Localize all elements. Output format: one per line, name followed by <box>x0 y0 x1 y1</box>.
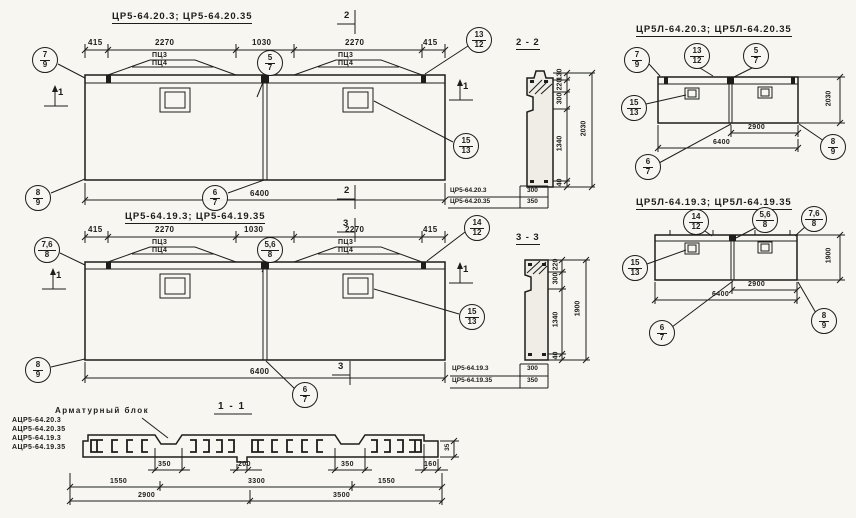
dim-label-vertical: 40 <box>553 339 560 373</box>
detail-callout: 7,68 <box>801 206 827 232</box>
callout-sheet: 12 <box>473 229 482 238</box>
table-value: 300 <box>527 188 538 195</box>
detail-callout: 1513 <box>453 133 479 159</box>
dim-label: 415 <box>423 39 438 47</box>
mount-loop-label: ПЦ3 <box>152 52 167 59</box>
callout-sheet: 12 <box>692 223 701 232</box>
callout-sheet: 7 <box>660 334 664 343</box>
dim-label: 6400 <box>250 190 269 198</box>
mount-loop-label: ПЦ3 <box>338 239 353 246</box>
table-value: 350 <box>527 378 538 385</box>
table-mark: ЦР5-64.19.35 <box>452 378 492 385</box>
dim-label: 350 <box>158 461 171 468</box>
panel-mark-title-row1: ЦР5-64.20.3; ЦР5-64.20.35 <box>112 11 252 24</box>
callout-sheet: 9 <box>36 199 40 208</box>
detail-callout: 79 <box>624 47 650 73</box>
dim-label-vertical: 40 <box>557 166 564 200</box>
dim-label: 2270 <box>155 226 174 234</box>
callout-sheet: 7 <box>646 168 650 177</box>
dim-label: 2900 <box>138 492 155 499</box>
dim-label: 1550 <box>378 478 395 485</box>
section-marker-3-bottom: 3 <box>338 362 343 372</box>
table-mark: ЦР5-64.19.3 <box>452 366 489 373</box>
dim-label: 350 <box>341 461 354 468</box>
detail-callout: 67 <box>202 185 228 211</box>
drawing-sheet: ЦР5-64.20.3; ЦР5-64.20.35 2 2 1 1 415 22… <box>0 0 856 518</box>
mount-loop-label: ПЦ4 <box>152 247 167 254</box>
detail-callout: 1513 <box>622 255 648 281</box>
callout-sheet: 9 <box>36 371 40 380</box>
section-marker-1-left: 1 <box>58 88 63 98</box>
dim-label-vertical: 1900 <box>575 292 582 326</box>
dim-label: 6400 <box>712 291 729 298</box>
dim-label: 2900 <box>748 124 765 131</box>
dim-label: 1550 <box>110 478 127 485</box>
dim-label: 6400 <box>713 139 730 146</box>
dim-label: 200 <box>238 461 251 468</box>
callout-sheet: 7 <box>754 57 758 66</box>
detail-callout: 89 <box>25 185 51 211</box>
dim-label-vertical: 2030 <box>826 82 833 116</box>
section-marker-1-right: 1 <box>463 265 468 275</box>
callout-sheet: 13 <box>468 318 477 327</box>
section-3-3-title: 3 - 3 <box>516 232 540 245</box>
detail-callout: 89 <box>820 134 846 160</box>
dim-label: 1030 <box>244 226 263 234</box>
mount-loop-label: ПЦ4 <box>338 247 353 254</box>
section-marker-2-top: 2 <box>344 11 349 21</box>
section-1-1-linework <box>67 414 459 505</box>
dim-label-vertical: 1340 <box>557 127 564 161</box>
section-marker-1-right: 1 <box>463 82 468 92</box>
panel-mark-title-row2: ЦР5-64.19.3; ЦР5-64.19.35 <box>125 211 265 224</box>
dim-label-vertical: 300 <box>557 82 564 116</box>
mount-loop-label: ПЦ3 <box>152 239 167 246</box>
table-value: 300 <box>527 366 538 373</box>
section-marker-1-left: 1 <box>56 271 61 281</box>
right1-elevation-linework <box>646 64 845 163</box>
dim-label: 415 <box>423 226 438 234</box>
callout-sheet: 12 <box>475 41 484 50</box>
table-mark: ЦР5-64.20.35 <box>450 199 490 206</box>
section-1-1-title: 1 - 1 <box>218 402 246 412</box>
detail-callout: 7,68 <box>34 237 60 263</box>
dim-label: 2270 <box>345 226 364 234</box>
rebar-block-label: Арматурный блок <box>55 407 149 415</box>
table-mark: ЦР5-64.20.3 <box>450 188 487 195</box>
detail-callout: 57 <box>257 50 283 76</box>
drawing-linework <box>0 0 856 518</box>
rebar-block-item: АЦР5-64.20.35 <box>12 426 66 433</box>
dim-label-vertical: 2030 <box>581 112 588 146</box>
detail-callout: 1412 <box>464 215 490 241</box>
dim-label: 2270 <box>155 39 174 47</box>
dim-label: 2900 <box>748 281 765 288</box>
callout-sheet: 9 <box>822 322 826 331</box>
detail-callout: 89 <box>811 308 837 334</box>
callout-sheet: 7 <box>213 199 217 208</box>
dim-label: 3300 <box>248 478 265 485</box>
callout-sheet: 9 <box>635 61 639 70</box>
detail-callout: 67 <box>649 320 675 346</box>
panel-mark-title-right1: ЦР5Л-64.20.3; ЦР5Л-64.20.35 <box>636 24 792 37</box>
callout-sheet: 8 <box>45 251 49 260</box>
callout-sheet: 8 <box>268 251 272 260</box>
detail-callout: 89 <box>25 357 51 383</box>
detail-callout: 67 <box>292 382 318 408</box>
table-value: 350 <box>527 199 538 206</box>
callout-sheet: 13 <box>630 109 639 118</box>
callout-sheet: 13 <box>631 269 640 278</box>
dim-label: 3500 <box>333 492 350 499</box>
dim-label: 160 <box>424 461 437 468</box>
callout-sheet: 12 <box>693 57 702 66</box>
callout-sheet: 9 <box>43 61 47 70</box>
detail-callout: 57 <box>743 43 769 69</box>
dim-label: 2270 <box>345 39 364 47</box>
section-marker-2-bottom: 2 <box>344 186 349 196</box>
callout-sheet: 9 <box>831 148 835 157</box>
mount-loop-label: ПЦ4 <box>338 60 353 67</box>
callout-sheet: 13 <box>462 147 471 156</box>
callout-sheet: 7 <box>268 64 272 73</box>
detail-callout: 1513 <box>459 304 485 330</box>
callout-sheet: 7 <box>303 396 307 405</box>
rebar-block-item: АЦР5-64.19.35 <box>12 444 66 451</box>
detail-callout: 1513 <box>621 95 647 121</box>
detail-callout: 1312 <box>684 43 710 69</box>
mount-loop-label: ПЦ3 <box>338 52 353 59</box>
dim-label: 415 <box>88 226 103 234</box>
dim-label-vertical: 1900 <box>826 239 833 273</box>
detail-callout: 5,68 <box>257 237 283 263</box>
rebar-block-item: АЦР5-64.20.3 <box>12 417 61 424</box>
dim-label: 415 <box>88 39 103 47</box>
dim-label: 1030 <box>252 39 271 47</box>
detail-callout: 79 <box>32 47 58 73</box>
dim-label-vertical: 300 <box>553 262 560 296</box>
section-2-2-title: 2 - 2 <box>516 37 540 50</box>
dim-label: 6400 <box>250 368 269 376</box>
callout-sheet: 8 <box>763 221 767 230</box>
detail-callout: 5,68 <box>752 207 778 233</box>
detail-callout: 1312 <box>466 27 492 53</box>
detail-callout: 1412 <box>683 209 709 235</box>
detail-callout: 67 <box>635 154 661 180</box>
mount-loop-label: ПЦ4 <box>152 60 167 67</box>
rebar-block-item: АЦР5-64.19.3 <box>12 435 61 442</box>
callout-sheet: 8 <box>812 220 816 229</box>
dim-label-vertical: 35 <box>445 430 452 464</box>
dim-label-vertical: 1340 <box>553 303 560 337</box>
